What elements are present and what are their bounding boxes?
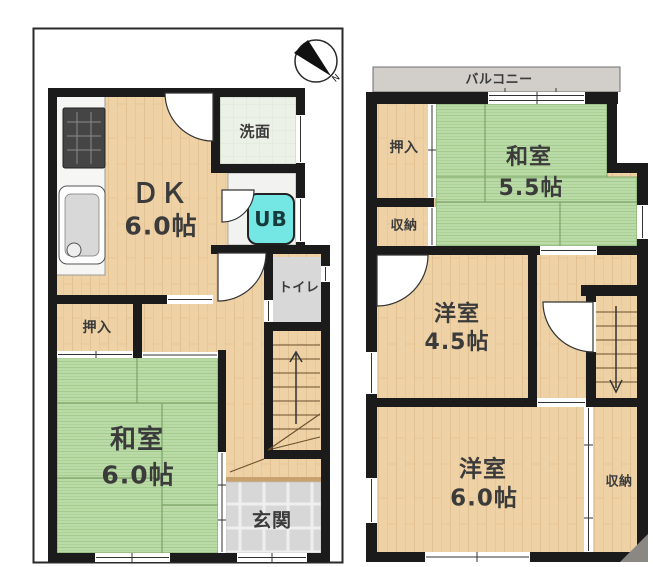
room-label-western-45: 洋室	[434, 304, 480, 326]
room-label-storage-right: 収納	[605, 476, 632, 489]
room-size-western-45: 4.5帖	[425, 332, 490, 354]
room-label-washitsu-2f: 和室	[506, 147, 552, 169]
room-size-dk: 6.0帖	[124, 214, 197, 239]
room-label-washroom: 洗面	[239, 125, 270, 140]
room-label-western-60: 洋室	[459, 459, 507, 482]
kitchen-counter	[57, 97, 105, 275]
room-label-unit-bath: UB	[254, 209, 287, 229]
floor1-plan: N	[34, 29, 343, 563]
room-label-toilet: トイレ	[279, 282, 320, 295]
sink-drain	[67, 243, 81, 257]
room-label-closet-1f: 押入	[83, 321, 112, 335]
room-label-dk: ＤＫ	[132, 181, 188, 208]
room-size-washitsu-2f: 5.5帖	[499, 178, 564, 200]
floor2-exterior-notch	[617, 92, 637, 165]
room-label-entrance: 玄関	[252, 512, 292, 531]
room-label-washitsu-1f: 和室	[110, 427, 164, 453]
room-size-western-60: 6.0帖	[450, 488, 518, 511]
room-label-balcony: バルコニー	[465, 74, 532, 87]
floorplan-canvas: N	[0, 0, 653, 567]
entrance-step	[226, 477, 321, 482]
room-label-storage-left: 収納	[390, 220, 417, 233]
stove-icon	[63, 108, 105, 168]
room-size-washitsu-1f: 6.0帖	[101, 463, 174, 488]
compass: N	[294, 40, 342, 85]
room-label-closet-2f: 押入	[390, 141, 419, 155]
floor1-exterior-notch	[305, 88, 321, 245]
compass-n-label: N	[331, 73, 343, 85]
floorplan-graphic: N	[0, 0, 653, 567]
